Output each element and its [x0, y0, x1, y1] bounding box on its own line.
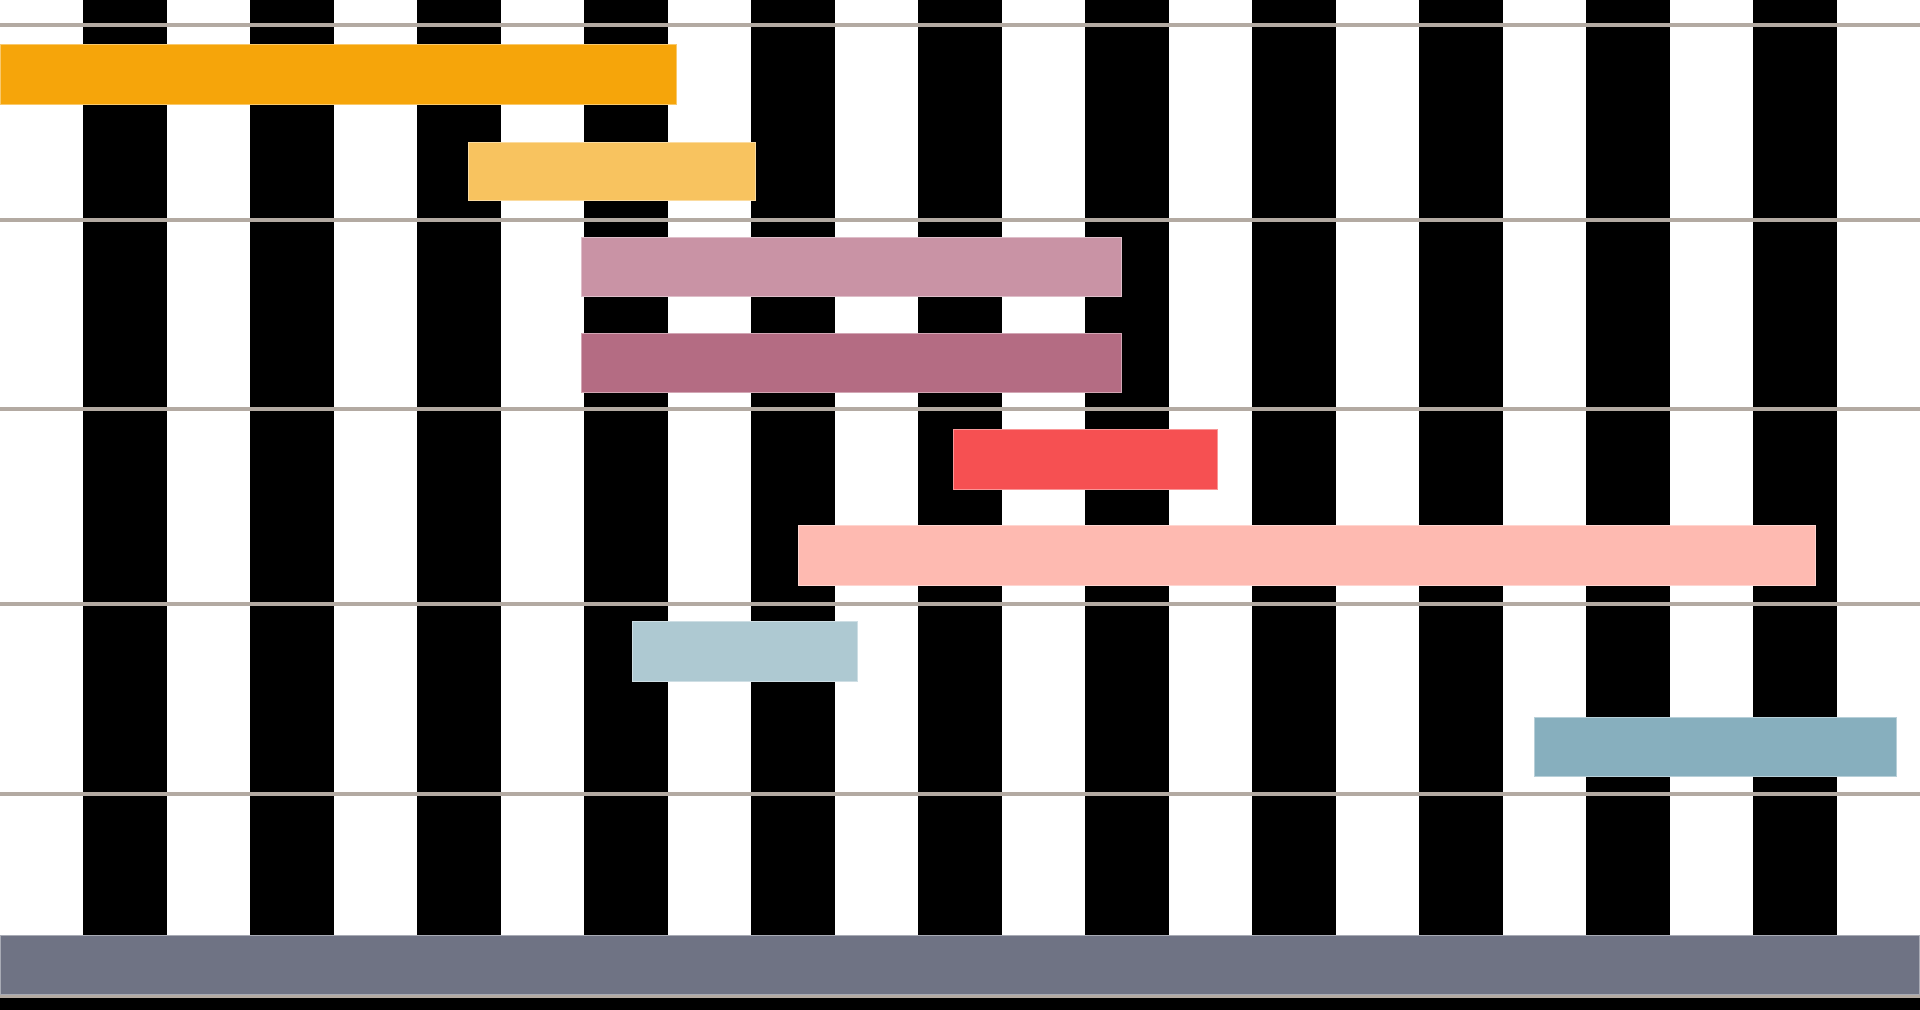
gantt-bar-task-5	[953, 429, 1218, 490]
day-column-stripe	[0, 0, 84, 1010]
day-column-stripe	[918, 0, 1002, 1010]
day-column-stripe	[1586, 0, 1670, 1010]
section-gridline	[0, 792, 1920, 796]
day-column-stripe	[1336, 0, 1420, 1010]
day-column-stripe	[1085, 0, 1169, 1010]
day-column-stripe	[1837, 0, 1920, 1010]
day-column-stripe	[835, 0, 919, 1010]
day-column-stripe	[1503, 0, 1587, 1010]
day-column-stripe	[751, 0, 835, 1010]
day-column-stripe	[1419, 0, 1503, 1010]
gantt-bar-task-2	[468, 142, 756, 201]
day-column-stripe	[250, 0, 334, 1010]
gantt-bar-task-4	[581, 333, 1122, 393]
day-column-stripe	[1753, 0, 1837, 1010]
gantt-bar-task-6	[798, 525, 1816, 586]
section-gridline	[0, 218, 1920, 222]
gantt-bar-task-7	[632, 621, 858, 682]
gantt-bar-task-8	[1534, 717, 1897, 777]
bottom-margin-band	[0, 998, 1920, 1010]
section-gridline	[0, 407, 1920, 411]
gantt-bar-task-1	[0, 44, 677, 105]
day-column-stripe	[1169, 0, 1253, 1010]
day-column-stripe	[1670, 0, 1754, 1010]
day-column-stripe	[1002, 0, 1086, 1010]
gantt-chart	[0, 0, 1920, 1010]
gantt-bar-task-9	[0, 935, 1920, 995]
day-column-stripe	[334, 0, 418, 1010]
day-column-stripe	[1252, 0, 1336, 1010]
gantt-bar-task-3	[581, 237, 1122, 297]
day-column-stripe	[167, 0, 251, 1010]
section-gridline	[0, 23, 1920, 27]
day-column-stripe	[83, 0, 167, 1010]
section-gridline	[0, 602, 1920, 606]
